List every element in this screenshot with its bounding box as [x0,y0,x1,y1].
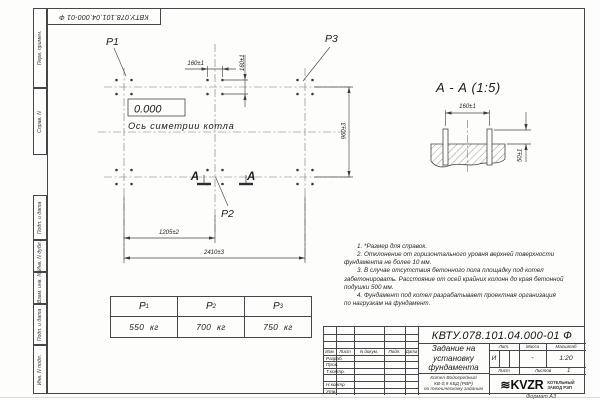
point-label-p1: P1 [106,36,119,48]
dim-160-vertical: 160±1 [240,54,246,71]
logo-caption-line: ЗАВОД РЭП [547,385,574,390]
col-izm: Изм. [324,348,336,355]
load-symbol: P [206,301,213,312]
kvzr-logo-text: KVZR [510,378,543,392]
drawing-title: Задание на установку фундамента [418,344,489,373]
point-label-p3: P3 [325,33,338,45]
title-line: фундамента [428,363,478,373]
mass-value: - [519,350,546,367]
note-line: подушки 500 мм. [344,284,586,292]
product-name: Котел Водогрейный КВ-0,9 КБД (РВР) по те… [418,374,489,395]
load-symbol: P [139,301,146,312]
kvzr-logo-icon: ≋ [500,378,509,392]
sheets-label: Листов [535,368,551,373]
row-tkontr: Т.контр. [324,368,354,374]
scale-label: Масштаб [546,343,586,350]
drawing-sheet: Перв. примен. Справ. N Подп. и дата Инв.… [0,0,600,400]
col-data: Дата [405,348,418,355]
dim-1205: 1205±2 [159,230,180,236]
load-symbol: P [273,301,280,312]
title-line: установку [433,354,474,364]
lit-label: Лит. [489,343,519,350]
col-podp: Подп. [384,348,405,355]
plan-dimension-arrows [124,67,351,259]
row-prov: Пров. [324,361,354,368]
dim-960: 960±3 [342,122,348,139]
sheet-label: Лист [489,367,519,374]
load-sub: 1 [146,304,149,310]
load-value-p1: 550 кг [111,317,178,338]
load-table-header-p3: P3 [245,297,312,317]
col-ndokum: N докум. [354,348,384,355]
title-line: Задание на [432,344,476,354]
load-sub: 3 [280,304,283,310]
load-table-header-p2: P2 [178,297,245,317]
kvzr-logo-cell: ≋ KVZR КОТЕЛЬНЫЙ ЗАВОД РЭП [489,374,586,395]
title-block: Изм. Лист N докум. Подп. Дата Разраб. Пр… [323,326,585,394]
plan-centerlines [98,44,352,263]
concrete-pad-hatched [431,144,505,167]
kvzr-logo-caption: КОТЕЛЬНЫЙ ЗАВОД РЭП [547,380,574,390]
mass-label: Масса [519,343,546,350]
row-utv: Утв. [324,388,354,395]
logo-caption-line: КОТЕЛЬНЫЙ [547,380,574,385]
level-mark: 0.000 [134,104,162,116]
note-line: 1. *Размер для справок. [344,243,586,251]
dim-160-horizontal: 160±1 [187,61,204,67]
note-line: 3. В случае отсутствия бетонного пола пл… [344,267,586,275]
plan-texts: P1 P3 P2 160±1 160±1 960±3 1205±2 2410±3… [106,33,348,256]
row-nkontr: Н.контр. [324,381,354,388]
note-line: по нагрузкам на фундамент. [344,300,586,308]
title-block-docnumber: КВТУ.078.101.04.000-01 Ф [418,328,586,343]
section-view-title: А - А (1:5) [435,80,501,95]
load-table: P1 P2 P3 550 кг 700 кг 750 кг [110,296,312,338]
section-dim-width: 160±1 [459,104,476,110]
axis-of-symmetry-label: Ось симетрии котла [128,121,234,131]
col-list: Лист [336,348,354,355]
sheets-value: 1 [567,368,570,374]
scale-value: 1:20 [546,350,586,367]
sheets-cell: Листов 1 [519,367,586,374]
format-label: Формат А3 [505,394,577,400]
lit-value: И [489,350,499,367]
section-cut-marks [197,175,253,184]
section-letter-left: А [190,171,199,183]
load-table-header-p1: P1 [111,297,178,317]
note-line: 4. Фундамент под котел разрабатывает про… [344,292,586,300]
load-value-p3: 750 кг [245,317,312,338]
point-label-p2: P2 [221,208,234,220]
section-view: А - А (1:5) 160±1 50±1 [431,80,531,172]
technical-notes: 1. *Размер для справок. 2. Отклонение от… [344,243,586,308]
plan-view: P1 P3 P2 160±1 160±1 960±3 1205±2 2410±3… [98,33,353,263]
load-value-p2: 700 кг [178,317,245,338]
section-dim-height: 50±1 [518,149,524,162]
load-sub: 2 [213,304,216,310]
product-line: по техническому заданию [424,387,483,393]
note-line: забетонировать. Расстояние от осей крайн… [344,276,586,284]
section-letter-right: А [246,171,255,183]
dim-2410: 2410±3 [203,250,225,256]
